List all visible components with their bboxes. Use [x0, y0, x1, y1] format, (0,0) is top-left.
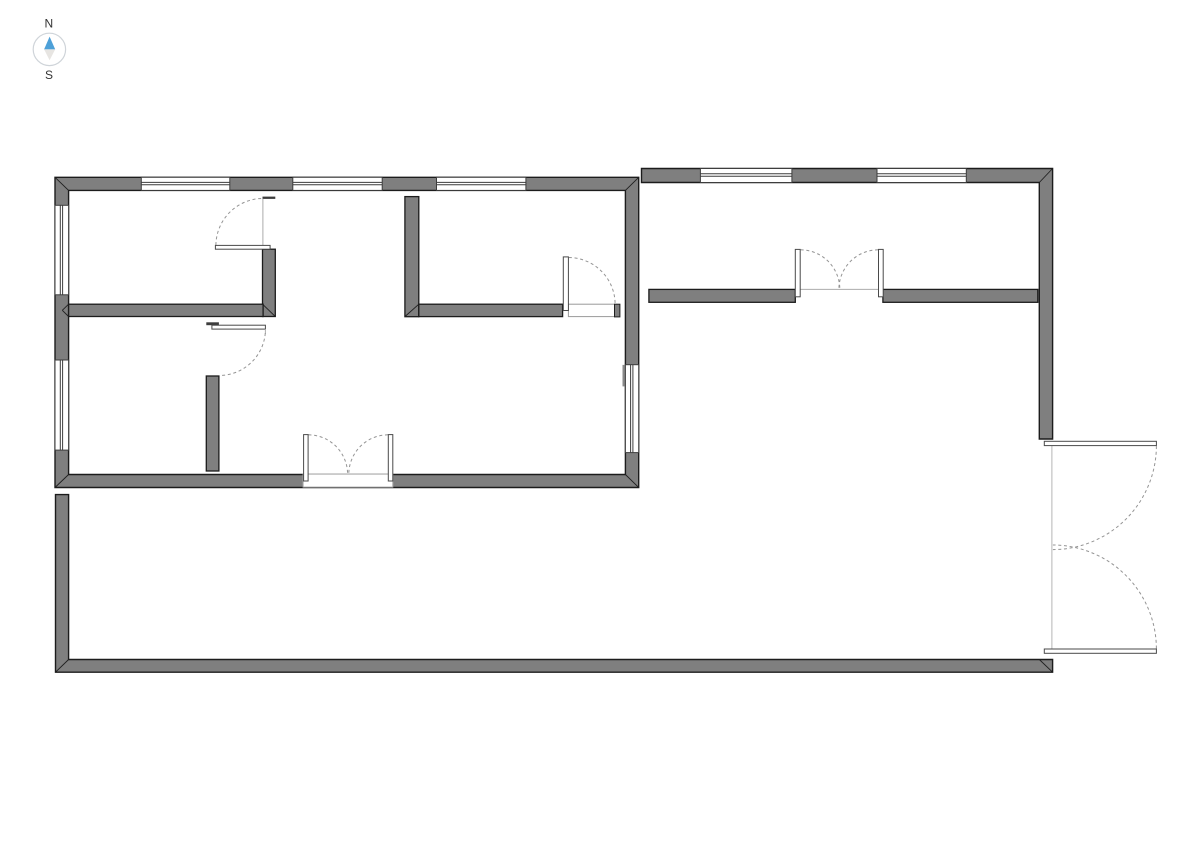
svg-text:S: S: [45, 68, 53, 82]
svg-text:N: N: [44, 17, 53, 31]
